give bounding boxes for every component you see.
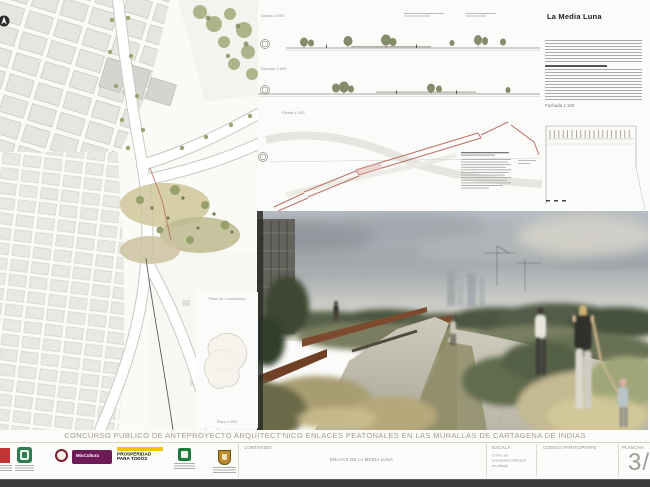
separator bbox=[486, 444, 487, 477]
mincultura-logo-text: MinCultura bbox=[76, 453, 99, 458]
localization-panel: Plano de Localizacion Plano 1:500 bbox=[196, 292, 258, 428]
institution-logo-red bbox=[0, 448, 10, 463]
institution-logo-green bbox=[17, 447, 32, 463]
prosperidad-logo: PROSPERIDAD PARA TODOS bbox=[117, 447, 165, 467]
fachada-label: Fachada 1:100 bbox=[545, 103, 574, 108]
section-annotations bbox=[404, 13, 496, 17]
axon-side-notes bbox=[518, 160, 536, 164]
shield-logo bbox=[218, 450, 231, 465]
localization-title: Plano de Localizacion bbox=[209, 297, 246, 301]
section-bottom-label: Seccion 1:500 bbox=[261, 66, 287, 71]
seal-logo bbox=[55, 449, 68, 462]
separator bbox=[238, 444, 239, 477]
memoria-paragraph-2 bbox=[545, 69, 642, 101]
axon-ref-marker bbox=[259, 153, 268, 162]
light-haze bbox=[457, 271, 648, 430]
escala-value: Como se encuentra indicado en dibujo bbox=[492, 453, 526, 469]
context-roads bbox=[266, 136, 542, 195]
logo-caption bbox=[15, 465, 34, 471]
separator bbox=[618, 444, 619, 477]
plancha-number: 3/6 bbox=[628, 449, 650, 477]
contenido-label: CONTENIDO bbox=[244, 445, 272, 450]
axon-note-block bbox=[461, 152, 511, 189]
fachada-elevation-drawing bbox=[542, 112, 646, 212]
board-title: CONCURSO PUBLICO DE ANTEPROYECTO ARQUITE… bbox=[0, 429, 650, 442]
codigo-participante-label: CODIGO PARTICIPANTE bbox=[543, 445, 597, 450]
bottom-band bbox=[0, 479, 650, 487]
localization-scale: Plano 1:500 bbox=[217, 420, 237, 424]
memoria-subhead-rule bbox=[545, 65, 607, 67]
escala-label: ESCALA bbox=[492, 445, 510, 450]
render-view bbox=[257, 211, 648, 430]
logo-caption bbox=[0, 465, 12, 471]
prosperidad-yellow-bar bbox=[117, 447, 163, 451]
memoria-heading: La Media Luna bbox=[547, 12, 602, 21]
separator bbox=[536, 444, 537, 477]
scale-bar bbox=[546, 200, 566, 202]
contenido-value: ENLACE DE LA MEDIA LUNA bbox=[330, 457, 393, 462]
memoria-paragraph-1 bbox=[545, 40, 642, 64]
bay-outline-sketch bbox=[204, 333, 247, 388]
axon-diagram: Planta 1:200 bbox=[256, 100, 546, 212]
mincultura-logo: MinCultura bbox=[72, 450, 112, 464]
section-top-drawing bbox=[286, 35, 540, 51]
logo-caption bbox=[213, 467, 236, 473]
alcaldia-logo bbox=[178, 448, 191, 461]
info-bar: MinCultura PROSPERIDAD PARA TODOS CONTEN… bbox=[0, 442, 650, 479]
section-ref-marker bbox=[261, 40, 270, 49]
sections-panel: Alzado 1:500 Seccio bbox=[256, 4, 542, 104]
logo-caption bbox=[174, 463, 195, 469]
competition-board: Alzado 1:500 Seccio bbox=[0, 0, 650, 487]
section-bottom-drawing bbox=[258, 82, 540, 97]
memoria-panel: La Media Luna Fachada 1:100 bbox=[542, 8, 646, 212]
axon-label: Planta 1:200 bbox=[282, 110, 305, 115]
prosperidad-text-line2: PARA TODOS bbox=[117, 457, 151, 462]
section-top-label: Alzado 1:500 bbox=[261, 13, 285, 18]
section-ref-marker-2 bbox=[261, 86, 270, 95]
